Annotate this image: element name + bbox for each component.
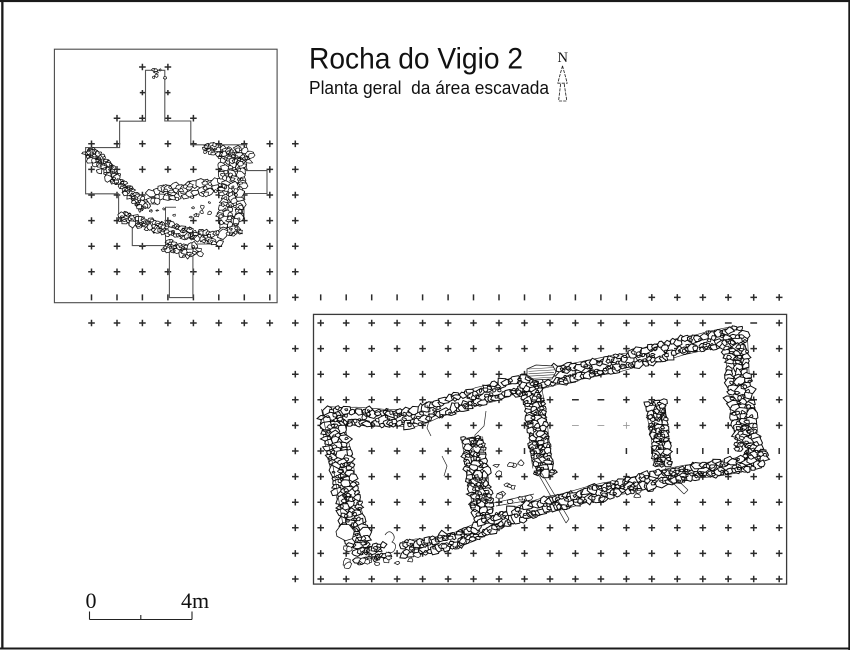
svg-text:Planta geral da área escavada: Planta geral da área escavada xyxy=(309,77,550,98)
svg-text:0: 0 xyxy=(86,588,97,613)
svg-text:Rocha do Vigio 2: Rocha do Vigio 2 xyxy=(309,43,523,76)
svg-text:4m: 4m xyxy=(181,588,209,613)
svg-text:N: N xyxy=(558,50,569,66)
